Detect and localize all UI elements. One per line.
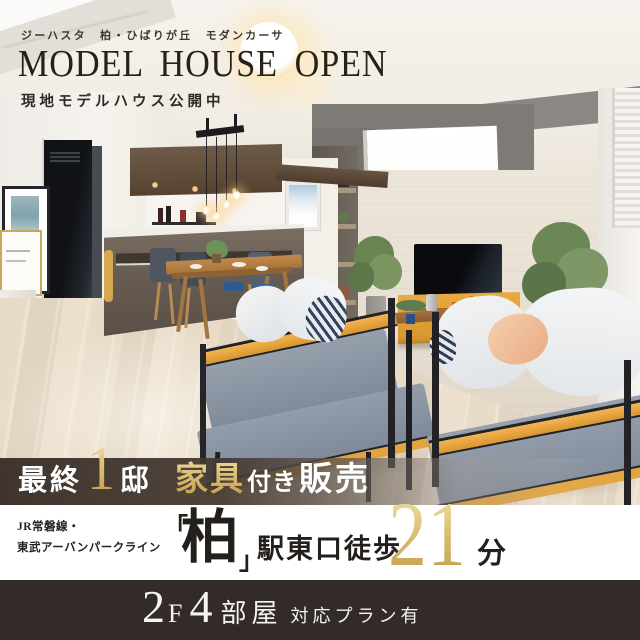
- walk-minutes: 21: [388, 489, 466, 581]
- tagline: 現地モデルハウス公開中: [21, 90, 225, 111]
- rail-line-2: 東武アーバンパークライン: [17, 538, 161, 559]
- footer-band: 2 F 4 部屋 対応プラン有: [0, 580, 640, 640]
- access-band: JR常磐線・ 東武アーバンパークライン 「 柏 」 駅東口徒歩 21 分: [0, 505, 640, 580]
- sale-suffix: 販売: [299, 452, 371, 500]
- plan-note: 対応プラン有: [290, 602, 422, 628]
- sale-highlight: 家具: [175, 452, 245, 500]
- sale-count-unit: 邸: [120, 457, 149, 499]
- project-subtitle: ジーハスタ 柏・ひばりが丘 モダンカーサ: [21, 27, 285, 43]
- room-unit: 部屋: [220, 593, 282, 630]
- sale-middle: 付き: [247, 462, 297, 497]
- walk-minutes-unit: 分: [477, 530, 506, 572]
- sale-count: 1: [87, 437, 115, 500]
- floor-unit: F: [168, 599, 183, 629]
- model-house-ad: ジーハスタ 柏・ひばりが丘 モダンカーサ MODEL HOUSE OPEN 現地…: [0, 0, 640, 640]
- sale-banner: 最終 1 邸 家具 付き 販売: [0, 458, 640, 505]
- sale-banner-text: 最終 1 邸 家具 付き 販売: [18, 444, 371, 500]
- room-number: 4: [189, 584, 212, 630]
- floor-number: 2: [142, 584, 165, 630]
- walk-label: 駅東口徒歩: [257, 527, 402, 566]
- page-title: MODEL HOUSE OPEN: [18, 42, 388, 86]
- rail-lines: JR常磐線・ 東武アーバンパークライン: [17, 517, 161, 560]
- footer-text: 2 F 4 部屋 対応プラン有: [142, 584, 422, 630]
- rail-line-1: JR常磐線・: [17, 517, 161, 538]
- sale-prefix: 最終: [18, 457, 82, 499]
- station-name: 柏: [181, 509, 239, 567]
